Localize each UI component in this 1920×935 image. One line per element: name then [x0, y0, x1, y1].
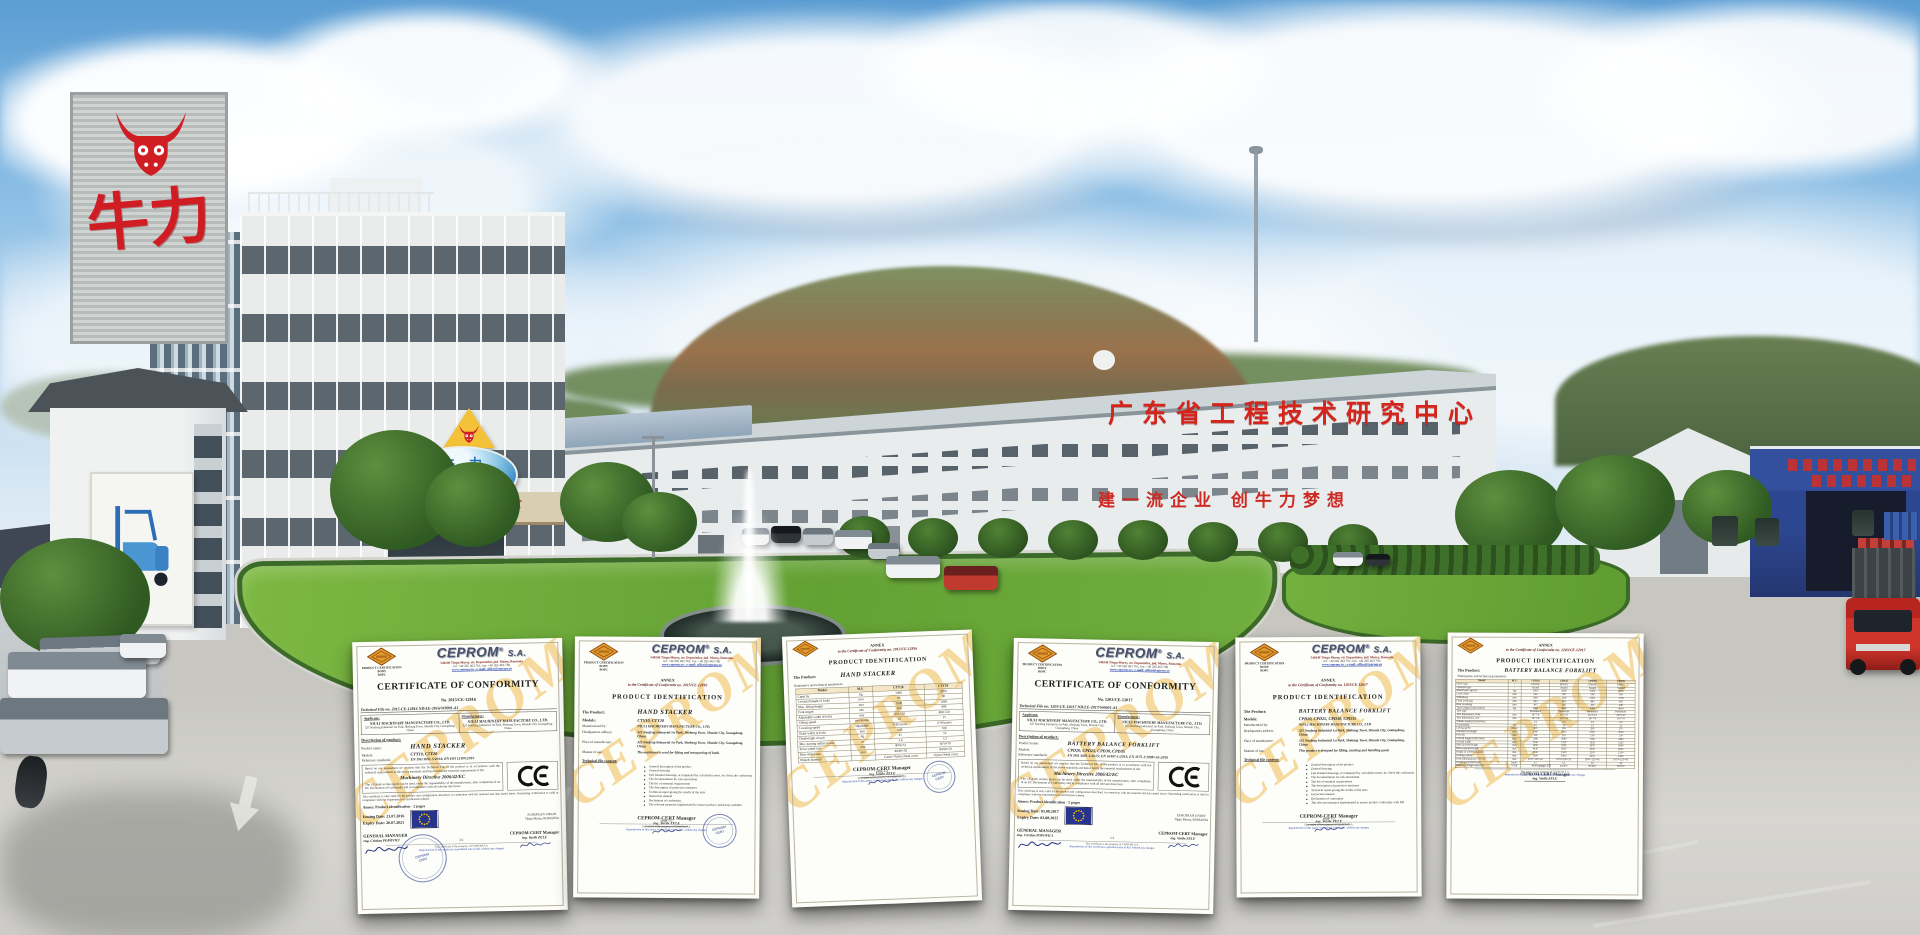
field-value: NIULI MACHINERY MANUFACTURE CO., LTD. [637, 725, 752, 730]
certificate-number: No. 1203/CE-12017 [1013, 695, 1218, 704]
truck-grill [1856, 644, 1910, 651]
product-name: BATTERY BALANCE FORKLIFT [1299, 707, 1391, 713]
field-label: Manufactured by: [1244, 723, 1299, 727]
ce-mark-icon [1165, 766, 1201, 788]
technical-file-content-label: Technical file content: [582, 758, 752, 764]
bull-logo-icon [458, 424, 480, 444]
statements-box: Based on our assessment we confirm that … [362, 762, 504, 793]
field-value: This product is designed for lifting, st… [1299, 749, 1413, 754]
technical-file-list: General description of the productGenera… [1306, 762, 1421, 805]
registered-mark: ® [499, 647, 504, 653]
field-label: Place of manufacture: [1244, 739, 1299, 747]
parties-table: Applicant: NIULI MACHINARY MANUFACTURE C… [361, 711, 557, 735]
annex-fields: Manufactured by:NIULI MACHINERY MANUFACT… [1236, 722, 1421, 753]
forklift [1755, 518, 1779, 546]
tree [425, 462, 520, 547]
expiry-date: 20.07.2021 [386, 820, 404, 825]
issuing-date: 21.07.2016 [386, 814, 404, 819]
expiry-date: 02.08.2022 [1040, 815, 1058, 820]
warehouse-red-text-line2 [1812, 475, 1916, 487]
table-cell: Wheels material [798, 756, 851, 763]
annex-product-identification-hand-stacker: CEPROM PRODUCT CERTIFICATION BODY BOPC C… [573, 636, 761, 898]
bull-billboard-icon [111, 109, 191, 179]
parties-table: Applicant: NIULI MACHINERY MANUFACTURE C… [1019, 711, 1210, 735]
certificate-of-conformity-hand-stacker: CEPROM PRODUCT CERTIFICATION BODY BOPC C… [352, 638, 568, 914]
billboard: 牛力 [70, 92, 228, 344]
field-row: Headquarters address:325 Nanfeng Industr… [582, 730, 752, 739]
truck-windshield [1854, 610, 1912, 632]
field-row: Place of manufacture:325 Nanfeng Industr… [1244, 739, 1413, 748]
annex-fields: Manufactured by:NIULI MACHINERY MANUFACT… [574, 724, 760, 756]
field-label: Headquarters address: [582, 730, 637, 739]
field-value: 325 Nanfeng Industrial 1st Park, Shebang… [1299, 739, 1413, 748]
field-row: Place of manufacture:325 Nanfeng Industr… [582, 740, 752, 749]
car [120, 634, 166, 658]
car [803, 528, 833, 545]
certificate-header: PRODUCT CERTIFICATION BODY BOPC CEPROM® … [352, 638, 563, 680]
field-row: Manner of use:This product is designed f… [1244, 749, 1413, 754]
field-label: Headquarters address: [1244, 729, 1299, 737]
truck-wheel [1850, 659, 1866, 675]
truck-wheel [1900, 659, 1916, 675]
certificate-footer: page 1/2 This annex is the property of C… [1236, 816, 1421, 830]
table-cell: Castor Nylon (Steel core) [875, 753, 926, 760]
annex-parameters-hand-stacker: CEPROM ANNEX to the Certificate of Confo… [782, 629, 982, 907]
antenna-mast [1254, 152, 1258, 342]
field-value: 325 Nanfeng Industrial 1st Park, Shebang… [1299, 728, 1413, 737]
annex-subtitle: to the Certificate of Conformity no. 120… [1236, 682, 1421, 687]
statements-box: Based on our assessment we confirm that … [1018, 759, 1155, 790]
ceprom-diamond-logo-icon [1458, 638, 1484, 655]
models: CPD20, CPD25, CPD30, CPD35 [1299, 716, 1356, 721]
ce-mark-box [507, 761, 559, 791]
certificate-title: CERTIFICATE OF CONFORMITY [1013, 678, 1218, 693]
standards: EN ISO 3691-1:2015; EN 16307-1:2013; EN … [1067, 754, 1168, 760]
certificate-number: No. 2015/CE-12816 [353, 695, 563, 704]
ce-mark-icon [514, 765, 550, 787]
parameters-table: ModelM.U.CTY10CTY20Capacitykg10002000Low… [795, 682, 965, 763]
certificate-of-conformity-forklift: CEPROM PRODUCT CERTIFICATION BODY BOPC C… [1008, 638, 1219, 914]
page-title: PRODUCT IDENTIFICATION [1236, 692, 1421, 701]
product-name: BATTERY BALANCE FORKLIFT [1504, 667, 1596, 673]
forklift [1712, 516, 1738, 546]
bush [978, 518, 1028, 558]
product-name: HAND STACKER [410, 741, 465, 750]
ce-mark-box [1158, 762, 1210, 792]
car [835, 530, 872, 549]
field-row: Manner of use:The machinery is used for … [582, 751, 752, 756]
rooftop-sign: 广东省工程技术研究中心 [1108, 394, 1488, 430]
field-value: The machinery is used for lifting and tr… [637, 751, 752, 756]
technical-file-content-label: Technical file content: [1244, 756, 1413, 761]
tower-windows [194, 424, 222, 628]
bush [908, 518, 958, 558]
red-car [944, 566, 998, 590]
field-label: Place of manufacture: [582, 740, 637, 749]
tree [622, 492, 697, 552]
certificate-header: PRODUCT CERTIFICATION BODY BOPC CEPROM® … [575, 636, 761, 675]
annex-parameters-forklift: CEPROM ANNEX to the Certificate of Confo… [1446, 632, 1643, 899]
technical-file-list: General description of the productGenera… [644, 765, 760, 809]
warehouse-red-text-line1 [1788, 459, 1916, 471]
field-row: Manufactured by:NIULI MACHINERY MANUFACT… [582, 724, 752, 729]
car [1366, 554, 1390, 566]
factory-campus-photo: 广东省工程技术研究中心 建一流企业 创牛力梦想 牛遍天下 牛力 NIULI 牛力 [0, 0, 1920, 935]
models: CTY10, CTY20 [637, 718, 664, 723]
certificate-footer: page 2/2 This annex is the property of C… [1447, 763, 1643, 777]
product-name: HAND STACKER [840, 669, 896, 679]
ceprom-diamond-logo-icon: PRODUCT CERTIFICATION BODY BOPC [1242, 643, 1286, 673]
brand-triangle-logo [443, 408, 495, 448]
eu-flag-icon [1065, 806, 1093, 825]
ceprom-logotype: CEPROM® S.A. [630, 643, 754, 655]
table-cell: Nylon (Steel core) [926, 751, 964, 758]
bush [1188, 522, 1238, 562]
tree [1555, 455, 1675, 550]
storage-racks [1884, 512, 1918, 540]
car [1333, 552, 1363, 566]
car [886, 556, 940, 578]
minivan [8, 652, 146, 698]
field-row: Headquarters address:325 Nanfeng Industr… [1244, 728, 1413, 737]
ceprom-logotype: CEPROM® S.A. [1290, 643, 1413, 655]
ceprom-diamond-logo-icon: PRODUCT CERTIFICATION BODY BOPC [1020, 644, 1065, 675]
bush [1118, 520, 1168, 560]
field-value: NIULI MACHINERY MANUFACTURE CO., LTD. [1299, 722, 1413, 727]
ceprom-diamond-logo-icon: PRODUCT CERTIFICATION BODY BOPC [582, 642, 626, 672]
list-item: The relevant measures implemented to ens… [644, 803, 760, 808]
field-value: 325 Nanfeng Industrial 1st Park, Shebang… [637, 741, 752, 750]
eu-flag-icon [410, 810, 438, 829]
fountain-jet [744, 470, 754, 620]
billboard-brand-text: 牛力 [71, 184, 228, 256]
page-title: PRODUCT IDENTIFICATION [574, 692, 760, 701]
antenna-top [1249, 146, 1263, 154]
field-label: Manufactured by: [582, 724, 637, 728]
table-cell: - [851, 755, 875, 761]
forklift [1852, 510, 1874, 536]
page-title: PRODUCT IDENTIFICATION [1448, 656, 1644, 665]
field-row: Manufactured by:NIULI MACHINERY MANUFACT… [1244, 722, 1413, 727]
field-label: Manner of use: [1244, 749, 1299, 753]
tower-roof [28, 368, 248, 412]
annex-product-identification-forklift: CEPROM PRODUCT CERTIFICATION BODY BOPC C… [1235, 637, 1421, 898]
field-value: 325 Nanfeng Industrial 1st Park, Shebang… [637, 731, 752, 740]
standards: EN ISO 3691-5:2014; EN ISO 12100:2010 [411, 756, 475, 761]
product-name: HAND STACKER [637, 708, 692, 716]
issuing-date: 03.08.2017 [1041, 809, 1059, 814]
annex-subtitle: to the Certificate of Conformity no. 201… [575, 682, 761, 688]
certificate-header: PRODUCT CERTIFICATION BODY BOPC CEPROM® … [1013, 638, 1219, 680]
ceprom-diamond-logo-icon: PRODUCT CERTIFICATION BODY BOPC [359, 647, 404, 678]
bush [1048, 520, 1098, 560]
ceprom-logotype: CEPROM® S.A. [1068, 645, 1211, 661]
ceprom-diamond-logo-icon [792, 640, 819, 658]
ceprom-logotype: CEPROM® S.A. [407, 644, 555, 661]
red-truck [1846, 598, 1920, 670]
certificate-header: PRODUCT CERTIFICATION BODY BOPC CEPROM® … [1235, 637, 1420, 676]
certificate-title: CERTIFICATE OF CONFORMITY [353, 678, 563, 693]
field-label: Manner of use: [582, 751, 637, 755]
car [0, 698, 168, 754]
parameters-table: ModelM.U.CPD20CPD25CPD30CPD35Drive type-… [1455, 679, 1636, 769]
models: CTY10, CTY20 [410, 751, 437, 757]
wall-slogan: 建一流企业 创牛力梦想 [1098, 486, 1428, 511]
list-item: The relevant measures implemented to ens… [1306, 801, 1421, 806]
